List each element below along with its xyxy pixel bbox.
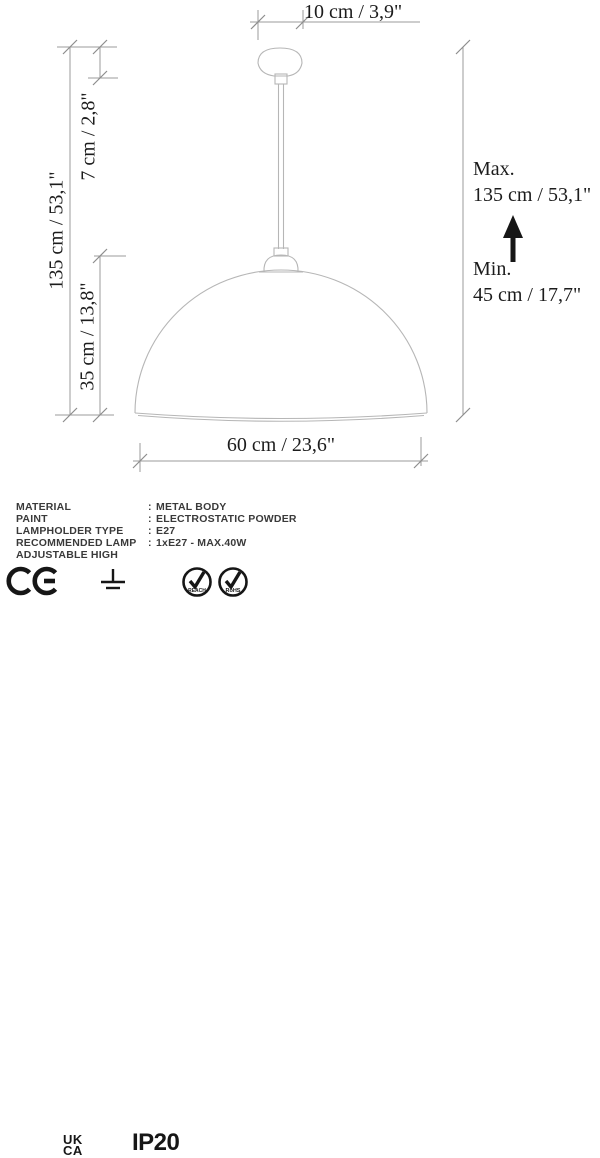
dome-shade <box>135 270 427 413</box>
dim-min-value: 45 cm / 17,7" <box>473 284 581 307</box>
lamp-outline <box>135 48 427 421</box>
dim-max-value: 135 cm / 53,1" <box>473 184 591 207</box>
spec-separator: : <box>148 501 156 513</box>
ceiling-canopy <box>258 48 302 76</box>
dim-min-label: Min. <box>473 258 511 281</box>
shade-rim-outer <box>135 413 427 419</box>
spec-value: METAL BODY <box>156 501 226 513</box>
dimension-lines <box>55 10 463 472</box>
dim-left-total-label: 135 cm / 53,1" <box>46 163 69 299</box>
spec-separator: : <box>148 537 156 549</box>
specifications-list: MATERIAL:METAL BODY PAINT:ELECTROSTATIC … <box>16 501 297 561</box>
dim-bottom-label: 60 cm / 23,6" <box>181 434 381 457</box>
ip-rating-label: IP20 <box>132 1129 179 1157</box>
rohs-badge-icon: RoHS <box>220 569 247 596</box>
spec-value: E27 <box>156 525 175 537</box>
reach-badge-icon: REACH <box>184 569 211 596</box>
spec-row-recommended-lamp: RECOMMENDED LAMP:1xE27 - MAX.40W <box>16 537 297 549</box>
spec-label: ADJUSTABLE HIGH <box>16 549 148 561</box>
adjust-up-arrow-icon <box>503 215 523 262</box>
ce-mark-icon <box>9 569 56 593</box>
dimension-ticks <box>63 15 470 468</box>
certification-row: REACH RoHS UK CA IP20 <box>0 564 600 600</box>
cert-icons-svg: REACH RoHS <box>0 564 600 600</box>
lamp-technical-drawing: 10 cm / 3,9" 135 cm / 53,1" 7 cm / 2,8" … <box>0 0 600 600</box>
spec-label: MATERIAL <box>16 501 148 513</box>
spec-value: ELECTROSTATIC POWDER <box>156 513 297 525</box>
ukca-line2: CA <box>63 1145 83 1156</box>
spec-row-lampholder: LAMPHOLDER TYPE:E27 <box>16 525 297 537</box>
spec-label: PAINT <box>16 513 148 525</box>
spec-row-material: MATERIAL:METAL BODY <box>16 501 297 513</box>
ukca-mark-icon: UK CA <box>63 1134 83 1156</box>
reach-badge-label: REACH <box>188 588 206 594</box>
spec-value: 1xE27 - MAX.40W <box>156 537 247 549</box>
dim-max-label: Max. <box>473 158 515 181</box>
spec-row-adjustable: ADJUSTABLE HIGH <box>16 549 297 561</box>
rohs-badge-label: RoHS <box>226 588 241 594</box>
spec-separator: : <box>148 513 156 525</box>
spec-separator: : <box>148 525 156 537</box>
dim-left-shade-label: 35 cm / 13,8" <box>77 272 100 402</box>
dim-left-canopy-label: 7 cm / 2,8" <box>78 82 101 192</box>
spec-label: LAMPHOLDER TYPE <box>16 525 148 537</box>
ukca-line1: UK <box>63 1134 83 1145</box>
spec-row-paint: PAINT:ELECTROSTATIC POWDER <box>16 513 297 525</box>
spec-label: RECOMMENDED LAMP <box>16 537 148 549</box>
dim-top-label: 10 cm / 3,9" <box>304 1 402 24</box>
earth-ground-icon <box>101 569 125 588</box>
